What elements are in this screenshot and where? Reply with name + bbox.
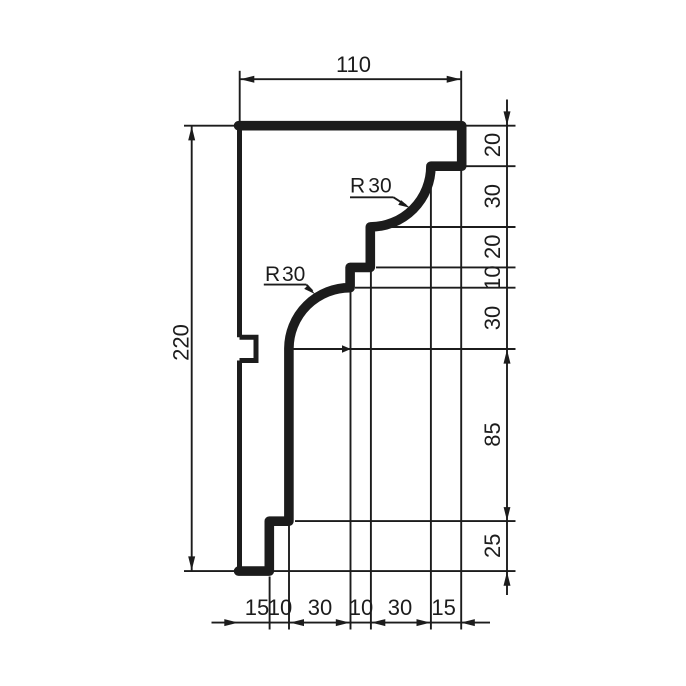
svg-text:20: 20 — [480, 235, 505, 259]
svg-text:R: R — [265, 263, 280, 286]
svg-text:20: 20 — [480, 133, 505, 157]
svg-text:30: 30 — [480, 184, 505, 208]
svg-text:15: 15 — [245, 595, 269, 620]
svg-text:10: 10 — [268, 595, 292, 620]
svg-text:15: 15 — [431, 595, 455, 620]
svg-text:10: 10 — [349, 595, 373, 620]
svg-text:R: R — [350, 175, 365, 198]
svg-text:10: 10 — [480, 265, 505, 289]
svg-text:220: 220 — [169, 324, 194, 361]
svg-text:25: 25 — [480, 534, 505, 558]
svg-text:30: 30 — [308, 595, 332, 620]
svg-text:30: 30 — [368, 175, 391, 198]
svg-text:30: 30 — [480, 306, 505, 330]
svg-text:85: 85 — [480, 422, 505, 446]
svg-text:30: 30 — [282, 263, 305, 286]
svg-text:110: 110 — [336, 52, 371, 77]
svg-text:30: 30 — [388, 595, 412, 620]
